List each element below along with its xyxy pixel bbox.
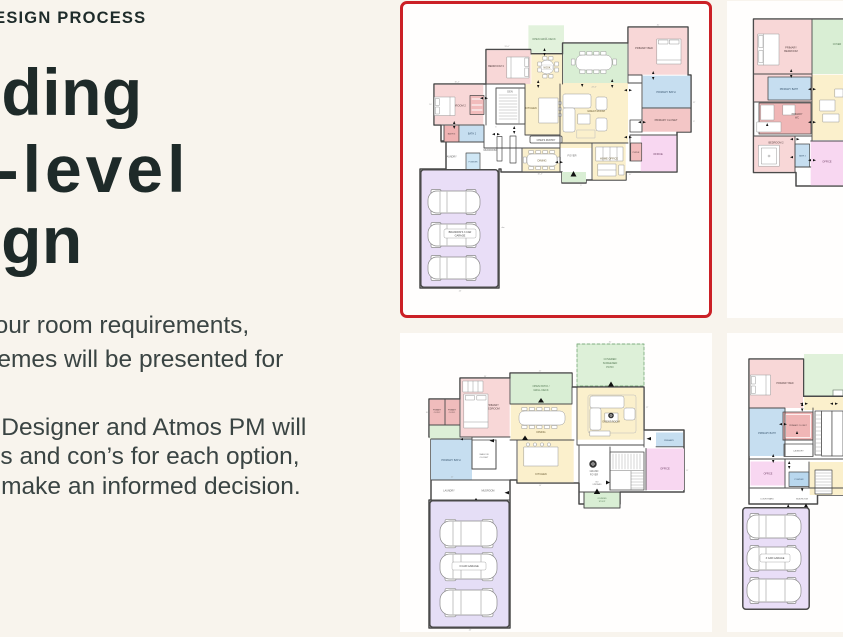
- svg-text:PRIMARY: PRIMARY: [664, 439, 674, 442]
- svg-text:16'-2": 16'-2": [454, 82, 459, 84]
- svg-text:20': 20': [609, 342, 612, 344]
- svg-text:PATIO: PATIO: [606, 365, 613, 369]
- svg-text:3 CAR GARAGE: 3 CAR GARAGE: [459, 564, 479, 568]
- svg-text:12': 12': [693, 102, 696, 104]
- svg-text:24'-6": 24'-6": [591, 87, 596, 89]
- svg-text:LAUNDRY: LAUNDRY: [793, 450, 804, 453]
- svg-text:GARAGE: GARAGE: [455, 235, 466, 238]
- svg-text:OFFICE: OFFICE: [764, 473, 773, 476]
- svg-text:MUDROOM: MUDROOM: [482, 490, 495, 493]
- svg-text:WALK IN: WALK IN: [480, 453, 489, 456]
- svg-text:14': 14': [429, 104, 432, 106]
- svg-text:16'-4": 16'-4": [537, 174, 542, 176]
- svg-text:BEDROOM 3: BEDROOM 3: [488, 64, 504, 68]
- svg-text:COVER: COVER: [833, 43, 842, 46]
- svg-text:CLOS 1: CLOS 1: [449, 412, 455, 414]
- svg-text:CHEF'S PANTRY: CHEF'S PANTRY: [537, 139, 556, 142]
- svg-text:31'-0": 31'-0": [504, 46, 509, 48]
- svg-text:POWDER: POWDER: [795, 479, 805, 481]
- svg-text:BATH 3: BATH 3: [448, 133, 456, 136]
- svg-text:OFFICE: OFFICE: [653, 152, 663, 156]
- svg-text:BEDROOM: BEDROOM: [784, 49, 797, 53]
- svg-text:20': 20': [657, 25, 660, 27]
- svg-text:OFFICE: OFFICE: [660, 467, 670, 471]
- svg-text:PRIMARY: PRIMARY: [785, 46, 797, 50]
- svg-text:COVERED: COVERED: [597, 498, 607, 500]
- svg-text:11': 11': [686, 470, 689, 472]
- svg-text:14': 14': [539, 485, 542, 487]
- svg-text:PRIMARY BATH: PRIMARY BATH: [441, 458, 460, 462]
- svg-text:BATH 2: BATH 2: [468, 133, 477, 136]
- svg-text:POWDER: POWDER: [469, 162, 479, 164]
- svg-text:9': 9': [580, 185, 582, 187]
- svg-text:FOYER: FOYER: [590, 473, 599, 476]
- svg-text:PRIMARY CLOSET: PRIMARY CLOSET: [655, 118, 678, 122]
- svg-text:BATH 2: BATH 2: [799, 155, 807, 158]
- svg-text:COURTYARD: COURTYARD: [760, 498, 774, 501]
- svg-text:OPEN PATIO /: OPEN PATIO /: [533, 384, 550, 388]
- svg-text:dim: dim: [501, 227, 505, 229]
- svg-text:OFFICE: OFFICE: [822, 161, 831, 164]
- svg-text:GREAT ROOM: GREAT ROOM: [587, 109, 605, 113]
- svg-text:GREAT ROOM: GREAT ROOM: [602, 420, 620, 424]
- svg-text:CLOS 2: CLOS 2: [434, 412, 440, 414]
- svg-text:KITCHEN: KITCHEN: [535, 472, 547, 476]
- svg-text:PRIMARY BED: PRIMARY BED: [635, 46, 653, 50]
- svg-text:DEN: DEN: [507, 90, 513, 94]
- svg-text:PRIMARY: PRIMARY: [487, 403, 499, 407]
- svg-text:PRIMARY BATH: PRIMARY BATH: [656, 90, 675, 94]
- svg-text:WC: WC: [795, 117, 799, 120]
- svg-text:NOOK: NOOK: [543, 66, 550, 69]
- svg-text:UPSTAIRS: UPSTAIRS: [593, 483, 603, 486]
- svg-text:3 CAR GARAGE: 3 CAR GARAGE: [766, 557, 785, 560]
- svg-text:STOOP: STOOP: [599, 501, 606, 503]
- svg-text:PWDR: PWDR: [633, 152, 640, 154]
- svg-text:24': 24': [459, 291, 462, 293]
- svg-text:CLOSET: CLOSET: [480, 457, 489, 459]
- svg-text:SCREENED: SCREENED: [603, 361, 618, 365]
- svg-text:LAUNDRY: LAUNDRY: [445, 156, 457, 159]
- svg-text:BEDROOM 2: BEDROOM 2: [768, 142, 784, 145]
- svg-text:KITCHEN: KITCHEN: [525, 106, 537, 110]
- svg-text:PRIMARY BED: PRIMARY BED: [776, 382, 793, 385]
- svg-text:COVERED: COVERED: [604, 357, 617, 361]
- svg-text:DINING: DINING: [536, 430, 545, 434]
- svg-text:MUDROOM: MUDROOM: [796, 499, 808, 501]
- svg-text:MUDROOM: MUDROOM: [484, 149, 497, 152]
- svg-text:LAUNDRY: LAUNDRY: [443, 490, 455, 493]
- svg-text:HOME OFFICE: HOME OFFICE: [600, 157, 618, 161]
- svg-text:8': 8': [693, 121, 695, 123]
- svg-text:10': 10': [629, 174, 632, 176]
- svg-text:24': 24': [469, 630, 472, 632]
- svg-text:FOYER: FOYER: [568, 154, 577, 158]
- svg-text:17': 17': [646, 407, 649, 409]
- svg-text:DINING: DINING: [537, 159, 546, 163]
- svg-text:BEDROOM: BEDROOM: [486, 407, 499, 411]
- svg-text:PRIMARY BATH: PRIMARY BATH: [780, 88, 799, 91]
- svg-text:PRIMARY BATH: PRIMARY BATH: [758, 432, 776, 435]
- svg-text:PRIMARY CLOSET: PRIMARY CLOSET: [789, 424, 807, 427]
- svg-text:22': 22': [539, 371, 542, 373]
- svg-text:GRILL DECK: GRILL DECK: [533, 388, 549, 392]
